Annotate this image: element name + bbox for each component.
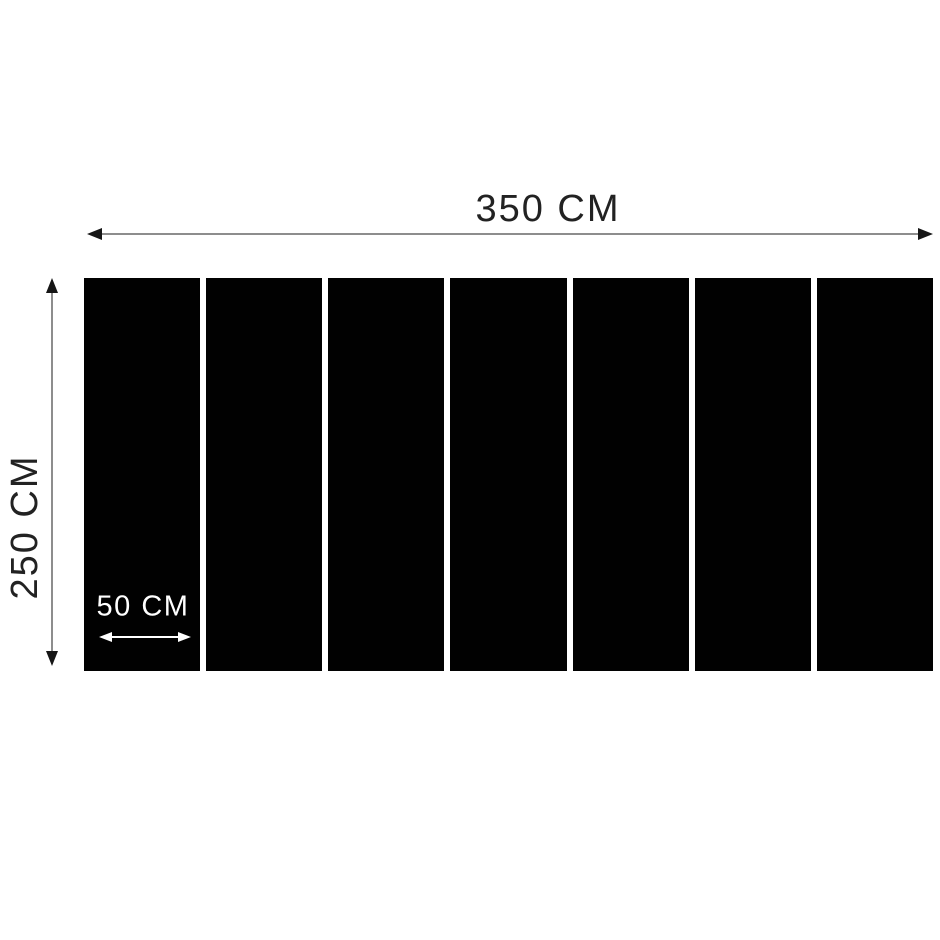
panel-width-dimension-arrow <box>99 630 191 644</box>
total-width-dimension-arrow <box>87 227 933 241</box>
total-height-dimension-arrow <box>45 278 59 666</box>
panel-3 <box>328 278 444 671</box>
product-dimension-diagram: 350 CM 250 CM 50 CM <box>0 0 940 940</box>
total-width-label: 350 CM <box>475 190 620 228</box>
panel-2 <box>206 278 322 671</box>
total-height-label: 250 CM <box>6 454 44 599</box>
panel-6 <box>695 278 811 671</box>
panel-row <box>84 278 933 671</box>
arrowhead-left-icon <box>99 632 112 642</box>
arrowhead-left-icon <box>87 228 102 240</box>
panel-width-label: 50 CM <box>97 593 190 622</box>
arrowhead-right-icon <box>918 228 933 240</box>
panel-7 <box>817 278 933 671</box>
arrowhead-down-icon <box>46 651 58 666</box>
arrowhead-up-icon <box>46 278 58 293</box>
panel-4 <box>450 278 566 671</box>
arrowhead-right-icon <box>178 632 191 642</box>
panel-5 <box>573 278 689 671</box>
